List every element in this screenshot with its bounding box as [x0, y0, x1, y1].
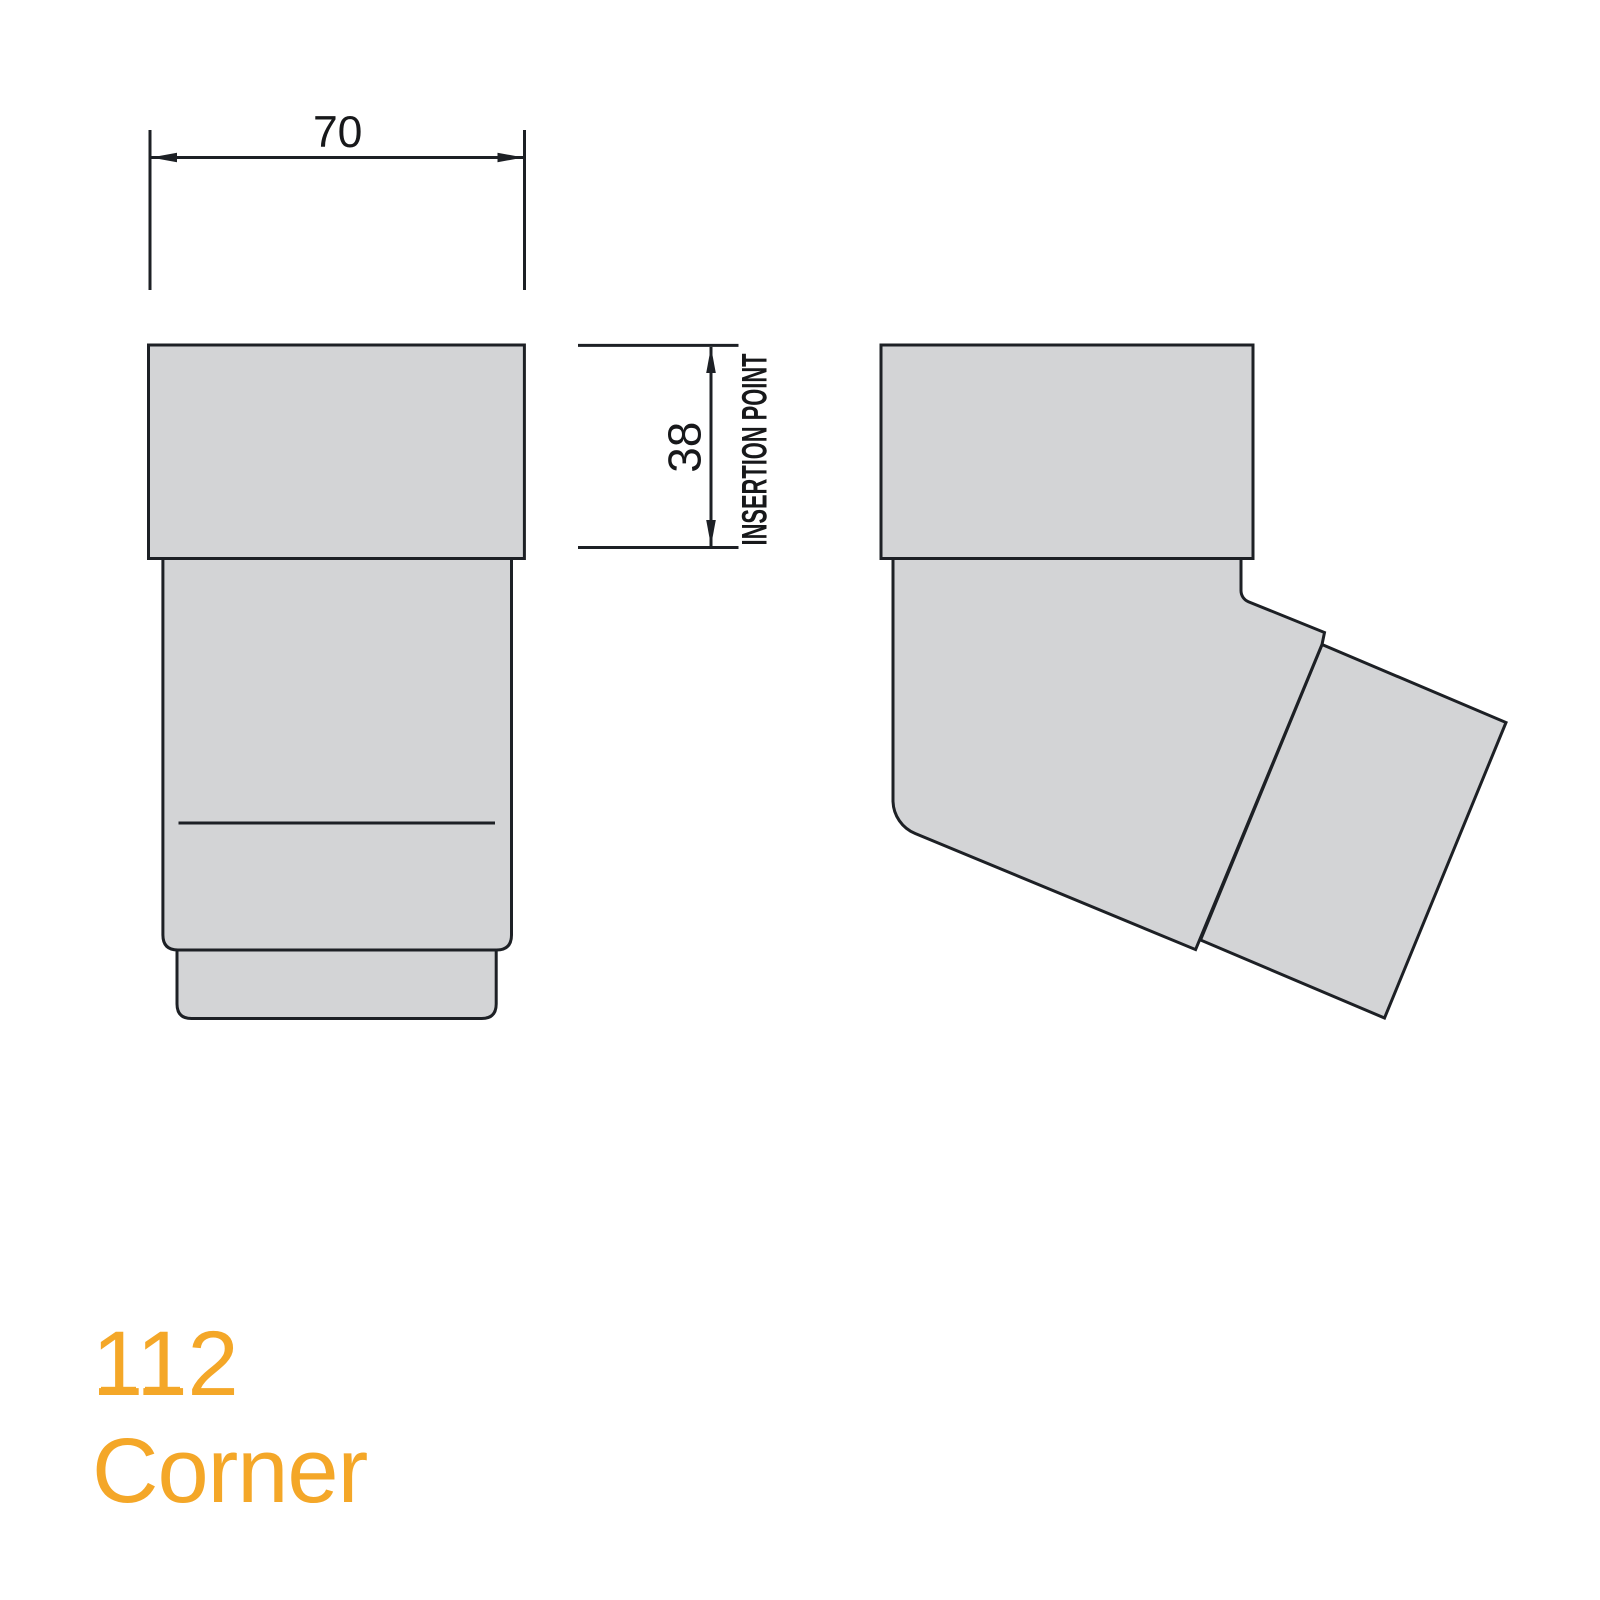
svg-text:INSERTION POINT: INSERTION POINT [736, 354, 775, 546]
svg-text:38: 38 [659, 422, 711, 473]
svg-text:Corner: Corner [92, 1420, 368, 1522]
svg-text:112: 112 [92, 1313, 239, 1415]
svg-text:70: 70 [313, 108, 363, 157]
